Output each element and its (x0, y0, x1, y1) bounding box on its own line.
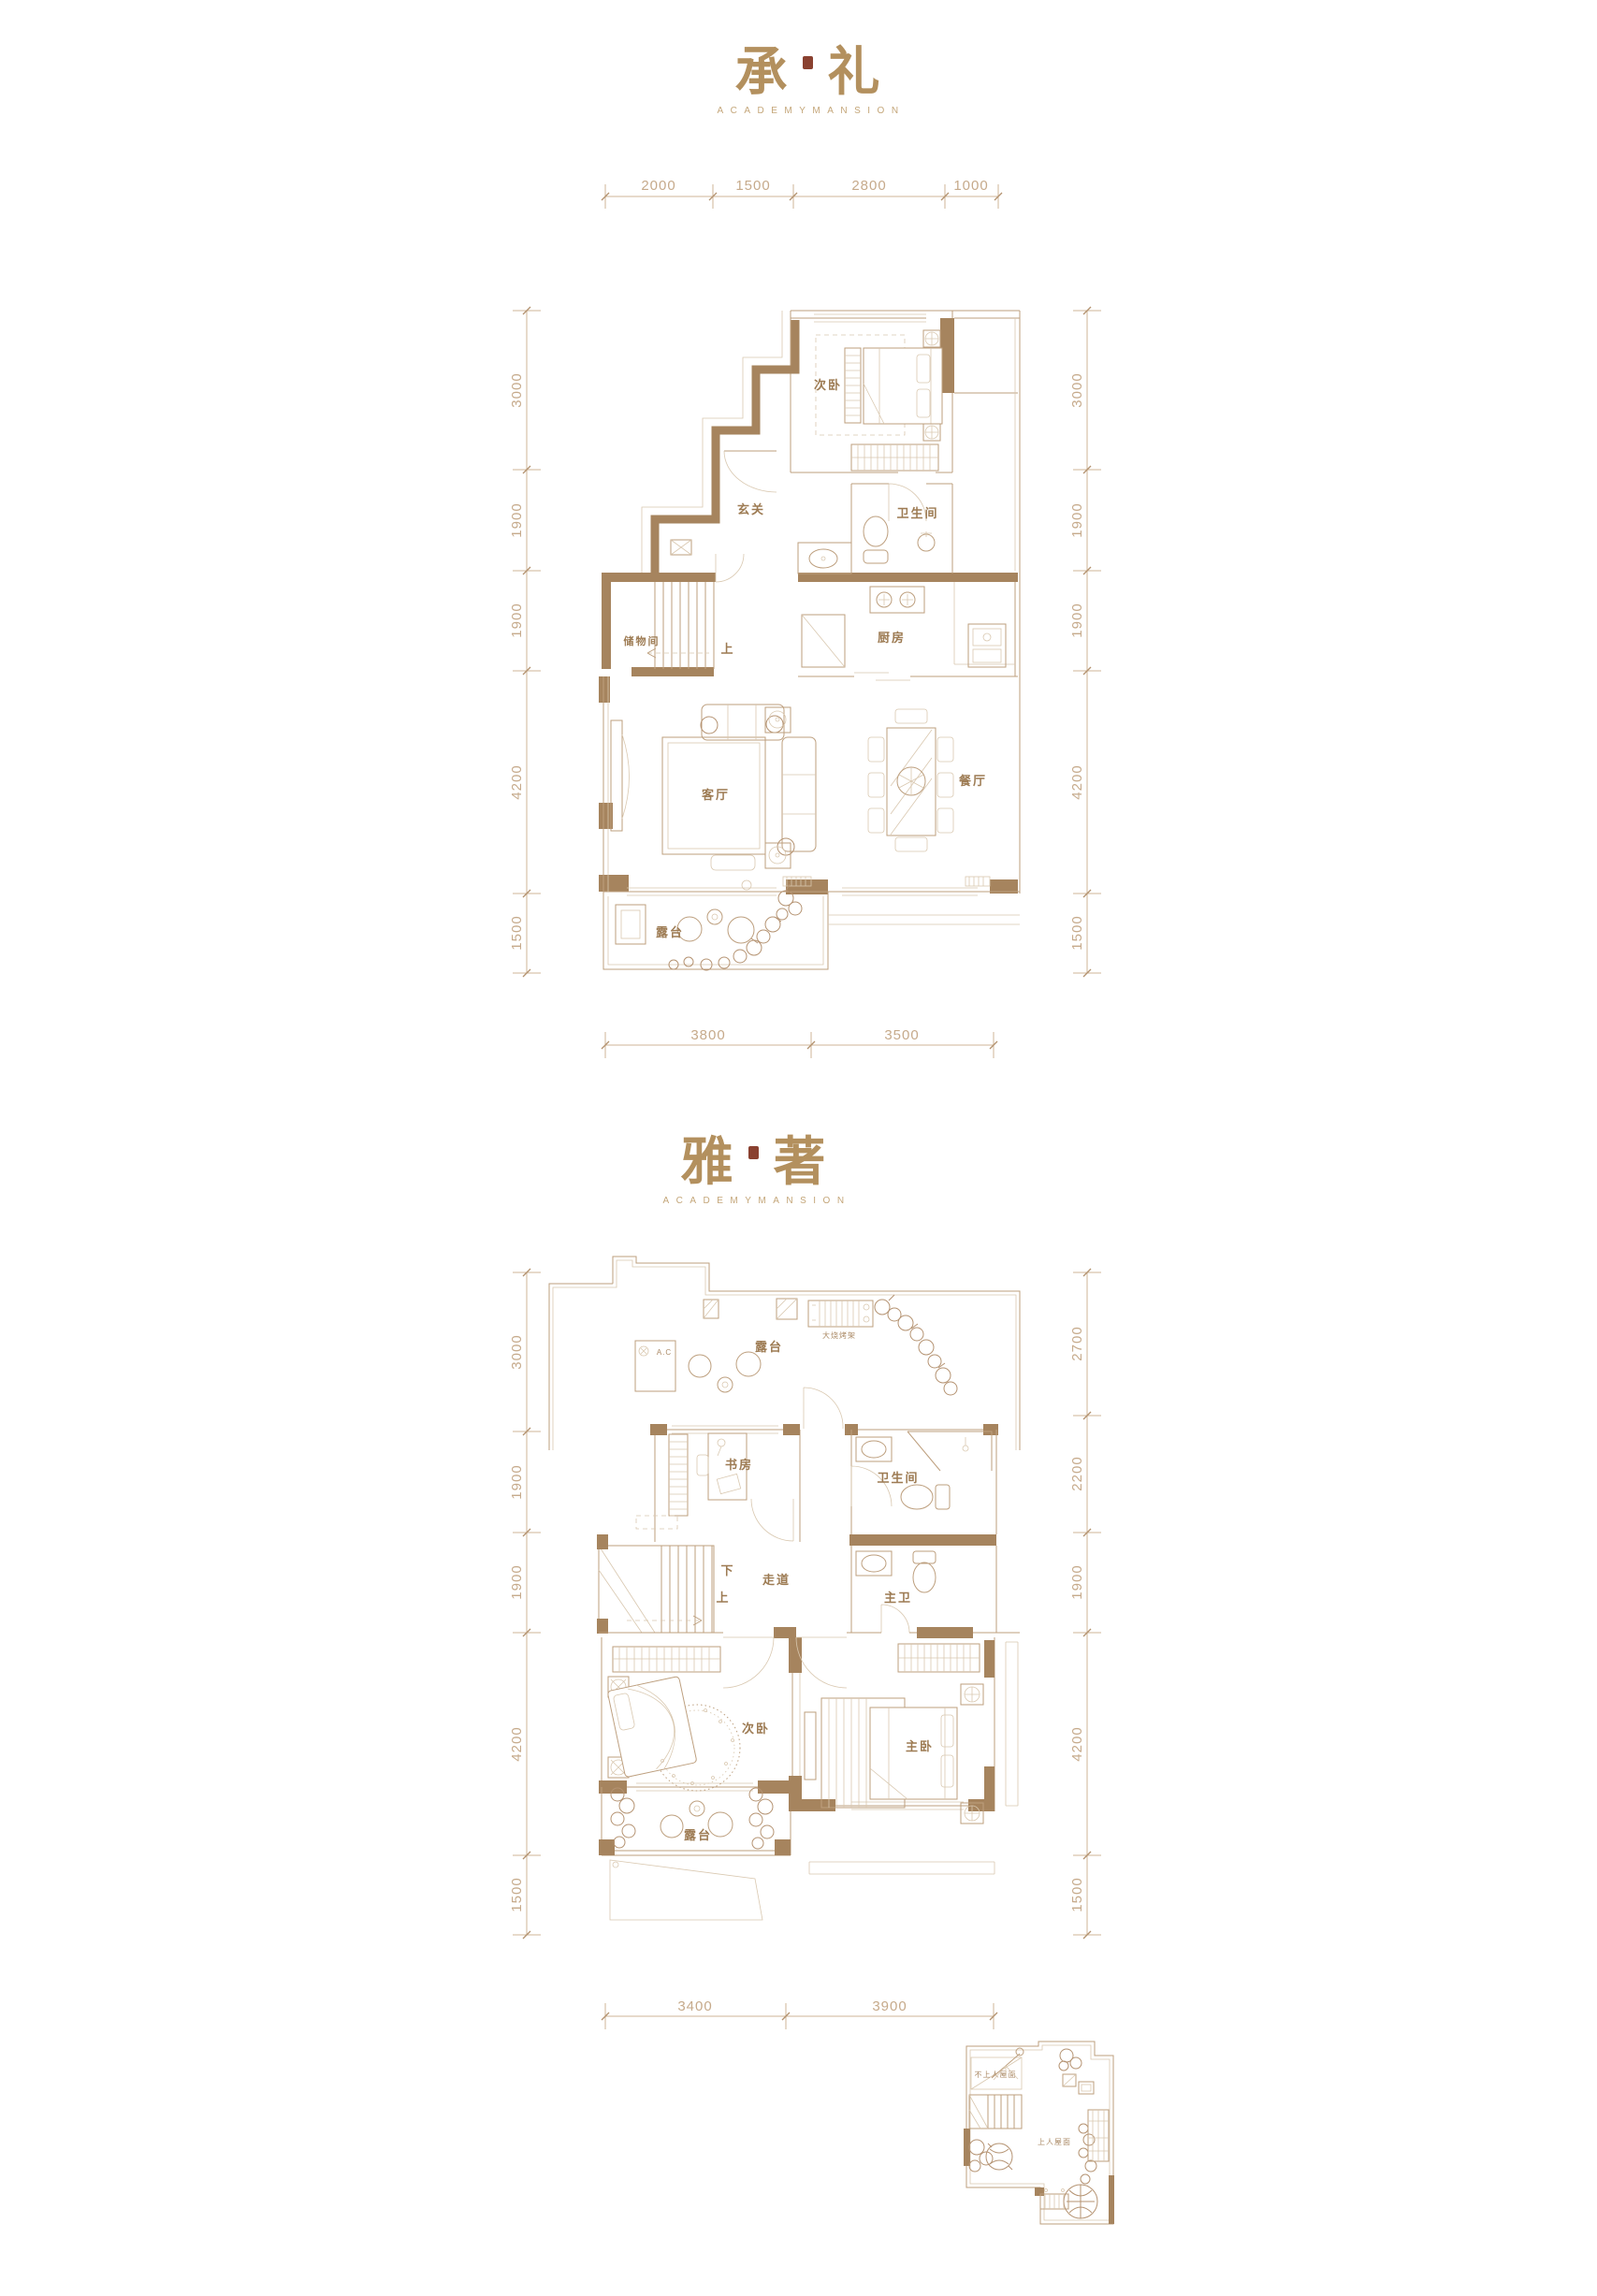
dim-label: 1500 (509, 1877, 525, 1911)
dim-label: 1900 (509, 1464, 525, 1499)
room-label-master: 主卧 (906, 1739, 934, 1753)
floor-plan-2: 3000 1900 1900 4200 1500 2700 2200 1900 … (505, 1123, 1104, 2068)
skylight-icon (777, 1299, 797, 1319)
plan2-bathroom: 卫生间 (849, 1430, 996, 1546)
bed-icon (870, 1707, 957, 1799)
toilet-icon (901, 1485, 950, 1509)
plan1-foyer: 玄关 (671, 451, 777, 555)
plan1-kitchen: 厨房 (802, 582, 1015, 667)
dim-label: 2200 (1069, 1456, 1085, 1490)
cushion-icon (701, 717, 718, 734)
plan1-dining: 餐厅 (783, 709, 990, 886)
round-chair-icon (728, 917, 754, 943)
plan1-bathroom: 卫生间 (809, 484, 939, 568)
room-label-kitchen: 厨房 (878, 631, 906, 645)
pergola-icon (1088, 2110, 1109, 2161)
room-label-foyer: 玄关 (737, 502, 765, 516)
dim-label: 3000 (509, 1334, 525, 1369)
dim-label: 4200 (1069, 1726, 1085, 1761)
brochure-page: 承 礼 ACADEMYMANSION 2000 1500 2800 1000 3… (0, 0, 1597, 2296)
room-label-stairs-up: 上 (720, 642, 734, 656)
room-label-bedroom2b: 次卧 (742, 1722, 770, 1736)
plan2-dimensions-bottom: 3400 3900 (602, 1998, 997, 2029)
plan1-dimensions-top: 2000 1500 2800 1000 (602, 178, 1002, 209)
plan1-living: 客厅 (611, 705, 816, 870)
dim-label: 3400 (677, 1998, 712, 2014)
plan1-dimensions-left: 3000 1900 1900 4200 1500 (509, 307, 541, 977)
sink-icon (918, 531, 935, 551)
sofa-icon (702, 705, 784, 740)
plan2-terrace-top: A.C 大烧烤架 (549, 1257, 1020, 1450)
room-label-terrace-top: 露台 (755, 1340, 783, 1354)
dim-label: 1900 (1069, 1564, 1085, 1599)
small-table-icon (707, 909, 722, 924)
room-label-down: 下 (720, 1563, 734, 1577)
tv-console-icon (805, 1712, 816, 1780)
side-table-icon (765, 707, 791, 733)
radiator-grille-icon (851, 444, 938, 471)
round-chair-icon (689, 1355, 711, 1377)
dim-label: 2700 (1069, 1326, 1085, 1360)
ladder-shelf-icon (669, 1434, 688, 1516)
room-label-dining: 餐厅 (958, 774, 987, 788)
round-chair-icon (661, 1815, 683, 1838)
skylight-icon (1063, 2074, 1094, 2094)
plants-icon (669, 884, 802, 970)
plan2-dimensions-left: 3000 1900 1900 4200 1500 (509, 1269, 541, 1939)
sink-icon (856, 1437, 892, 1461)
planter-icon (616, 905, 646, 944)
big-plant-icon (1064, 2185, 1097, 2218)
dim-label: 1500 (735, 178, 770, 194)
plan1-dimensions-right: 3000 1900 1900 4200 1500 (1069, 307, 1101, 977)
plan2-dimensions-right: 2700 2200 1900 4200 1500 (1069, 1269, 1101, 1939)
round-chair-icon (736, 1352, 761, 1376)
ceiling-fan-icon (923, 424, 940, 441)
dim-label: 1900 (509, 603, 525, 637)
room-label-terrace-bottom: 露台 (684, 1828, 712, 1842)
room-label-master-bath: 主卫 (884, 1591, 912, 1605)
bench-icon (711, 855, 755, 870)
ac-unit-icon: A.C (635, 1341, 675, 1391)
flower-bed-icon (986, 2143, 1012, 2170)
plan1-title-char2: 礼 (828, 45, 880, 100)
dim-label: 2800 (851, 178, 886, 194)
room-label-up2: 上 (716, 1591, 730, 1605)
dim-label: 3000 (509, 372, 525, 407)
dim-label: 1900 (1069, 603, 1085, 637)
shaft-icon (671, 540, 691, 555)
stove-icon (870, 587, 924, 613)
room-label-living: 客厅 (702, 788, 730, 802)
small-table-icon (718, 1377, 733, 1392)
dim-label: 1900 (509, 502, 525, 537)
bbq-label: 大烧烤架 (822, 1330, 856, 1340)
plan1-title-seal-icon (803, 56, 813, 69)
radiator-grille-icon (613, 1647, 720, 1672)
ceiling-fan-icon (923, 330, 940, 347)
dim-label: 3900 (872, 1998, 907, 2014)
room-label-study: 书房 (725, 1458, 753, 1472)
dim-label: 4200 (509, 764, 525, 799)
roof-access-label: 上人屋面 (1038, 2138, 1071, 2146)
small-table-icon (690, 1801, 704, 1816)
basin-drain-icon (821, 557, 825, 560)
light-icon (742, 880, 751, 890)
room-label-bedroom2: 次卧 (814, 378, 842, 392)
dim-label: 1500 (509, 915, 525, 950)
floor-plan-1: 2000 1500 2800 1000 3000 1900 1900 4200 … (505, 159, 1104, 1076)
dim-label: 3000 (1069, 372, 1085, 407)
plan1-subtitle: ACADEMYMANSION (505, 106, 1110, 116)
plan1-title-row: 承 礼 (505, 45, 1110, 100)
dim-label: 4200 (509, 1726, 525, 1761)
roof-plan-inset: 不上人屋面 (936, 2035, 1141, 2278)
inset-stairs-icon (969, 2095, 1022, 2129)
dim-label: 1500 (1069, 1877, 1085, 1911)
canopy-bed-icon (607, 1677, 697, 1778)
plan1-title: 承 礼 ACADEMYMANSION (505, 45, 1110, 116)
room-label-corridor: 走道 (762, 1573, 791, 1587)
room-label-storage: 储物间 (624, 634, 661, 647)
chaise-icon (782, 737, 816, 851)
sink-icon (856, 1551, 892, 1576)
nightstand-icon (961, 1684, 983, 1705)
plan2-master: 主卧 (796, 1637, 1018, 1824)
dim-label: 1900 (1069, 502, 1085, 537)
plan2-bedroom2: 次卧 (599, 1637, 802, 1811)
dim-label: 4200 (1069, 764, 1085, 799)
fridge-icon (802, 615, 845, 667)
dim-label: 2000 (641, 178, 675, 194)
basin-icon (809, 549, 837, 568)
dim-label: 3500 (884, 1027, 919, 1043)
plan1-dimensions-bottom: 3800 3500 (602, 1027, 997, 1058)
plan1-title-char1: 承 (735, 45, 788, 100)
dim-label: 3800 (690, 1027, 725, 1043)
plan2-study: 书房 (650, 1424, 998, 1542)
ac-label: A.C (657, 1348, 672, 1357)
plan2-master-bath: 主卫 (851, 1546, 996, 1633)
shower-icon (907, 1431, 992, 1471)
bbq-grill-icon (808, 1301, 873, 1327)
roof-no-access-area: 不上人屋面 (971, 2057, 1022, 2089)
dim-label: 1000 (953, 178, 988, 194)
room-label-bathroom2: 卫生间 (877, 1471, 919, 1485)
toilet-icon (913, 1551, 936, 1592)
skylight-icon (704, 1300, 719, 1318)
dim-label: 1900 (509, 1564, 525, 1599)
plan2-stairs-corridor: 下 上 走道 (597, 1516, 1020, 1638)
dim-label: 1500 (1069, 915, 1085, 950)
side-table-icon (765, 843, 791, 868)
toilet-icon (864, 516, 888, 563)
wardrobe-icon (898, 1644, 980, 1672)
plants-icon (875, 1295, 957, 1395)
plan1-bedroom2: 次卧 (814, 330, 942, 471)
room-label-terrace: 露台 (656, 925, 684, 939)
room-label-bathroom: 卫生间 (896, 506, 938, 520)
kitchen-sink-icon (968, 624, 1006, 667)
